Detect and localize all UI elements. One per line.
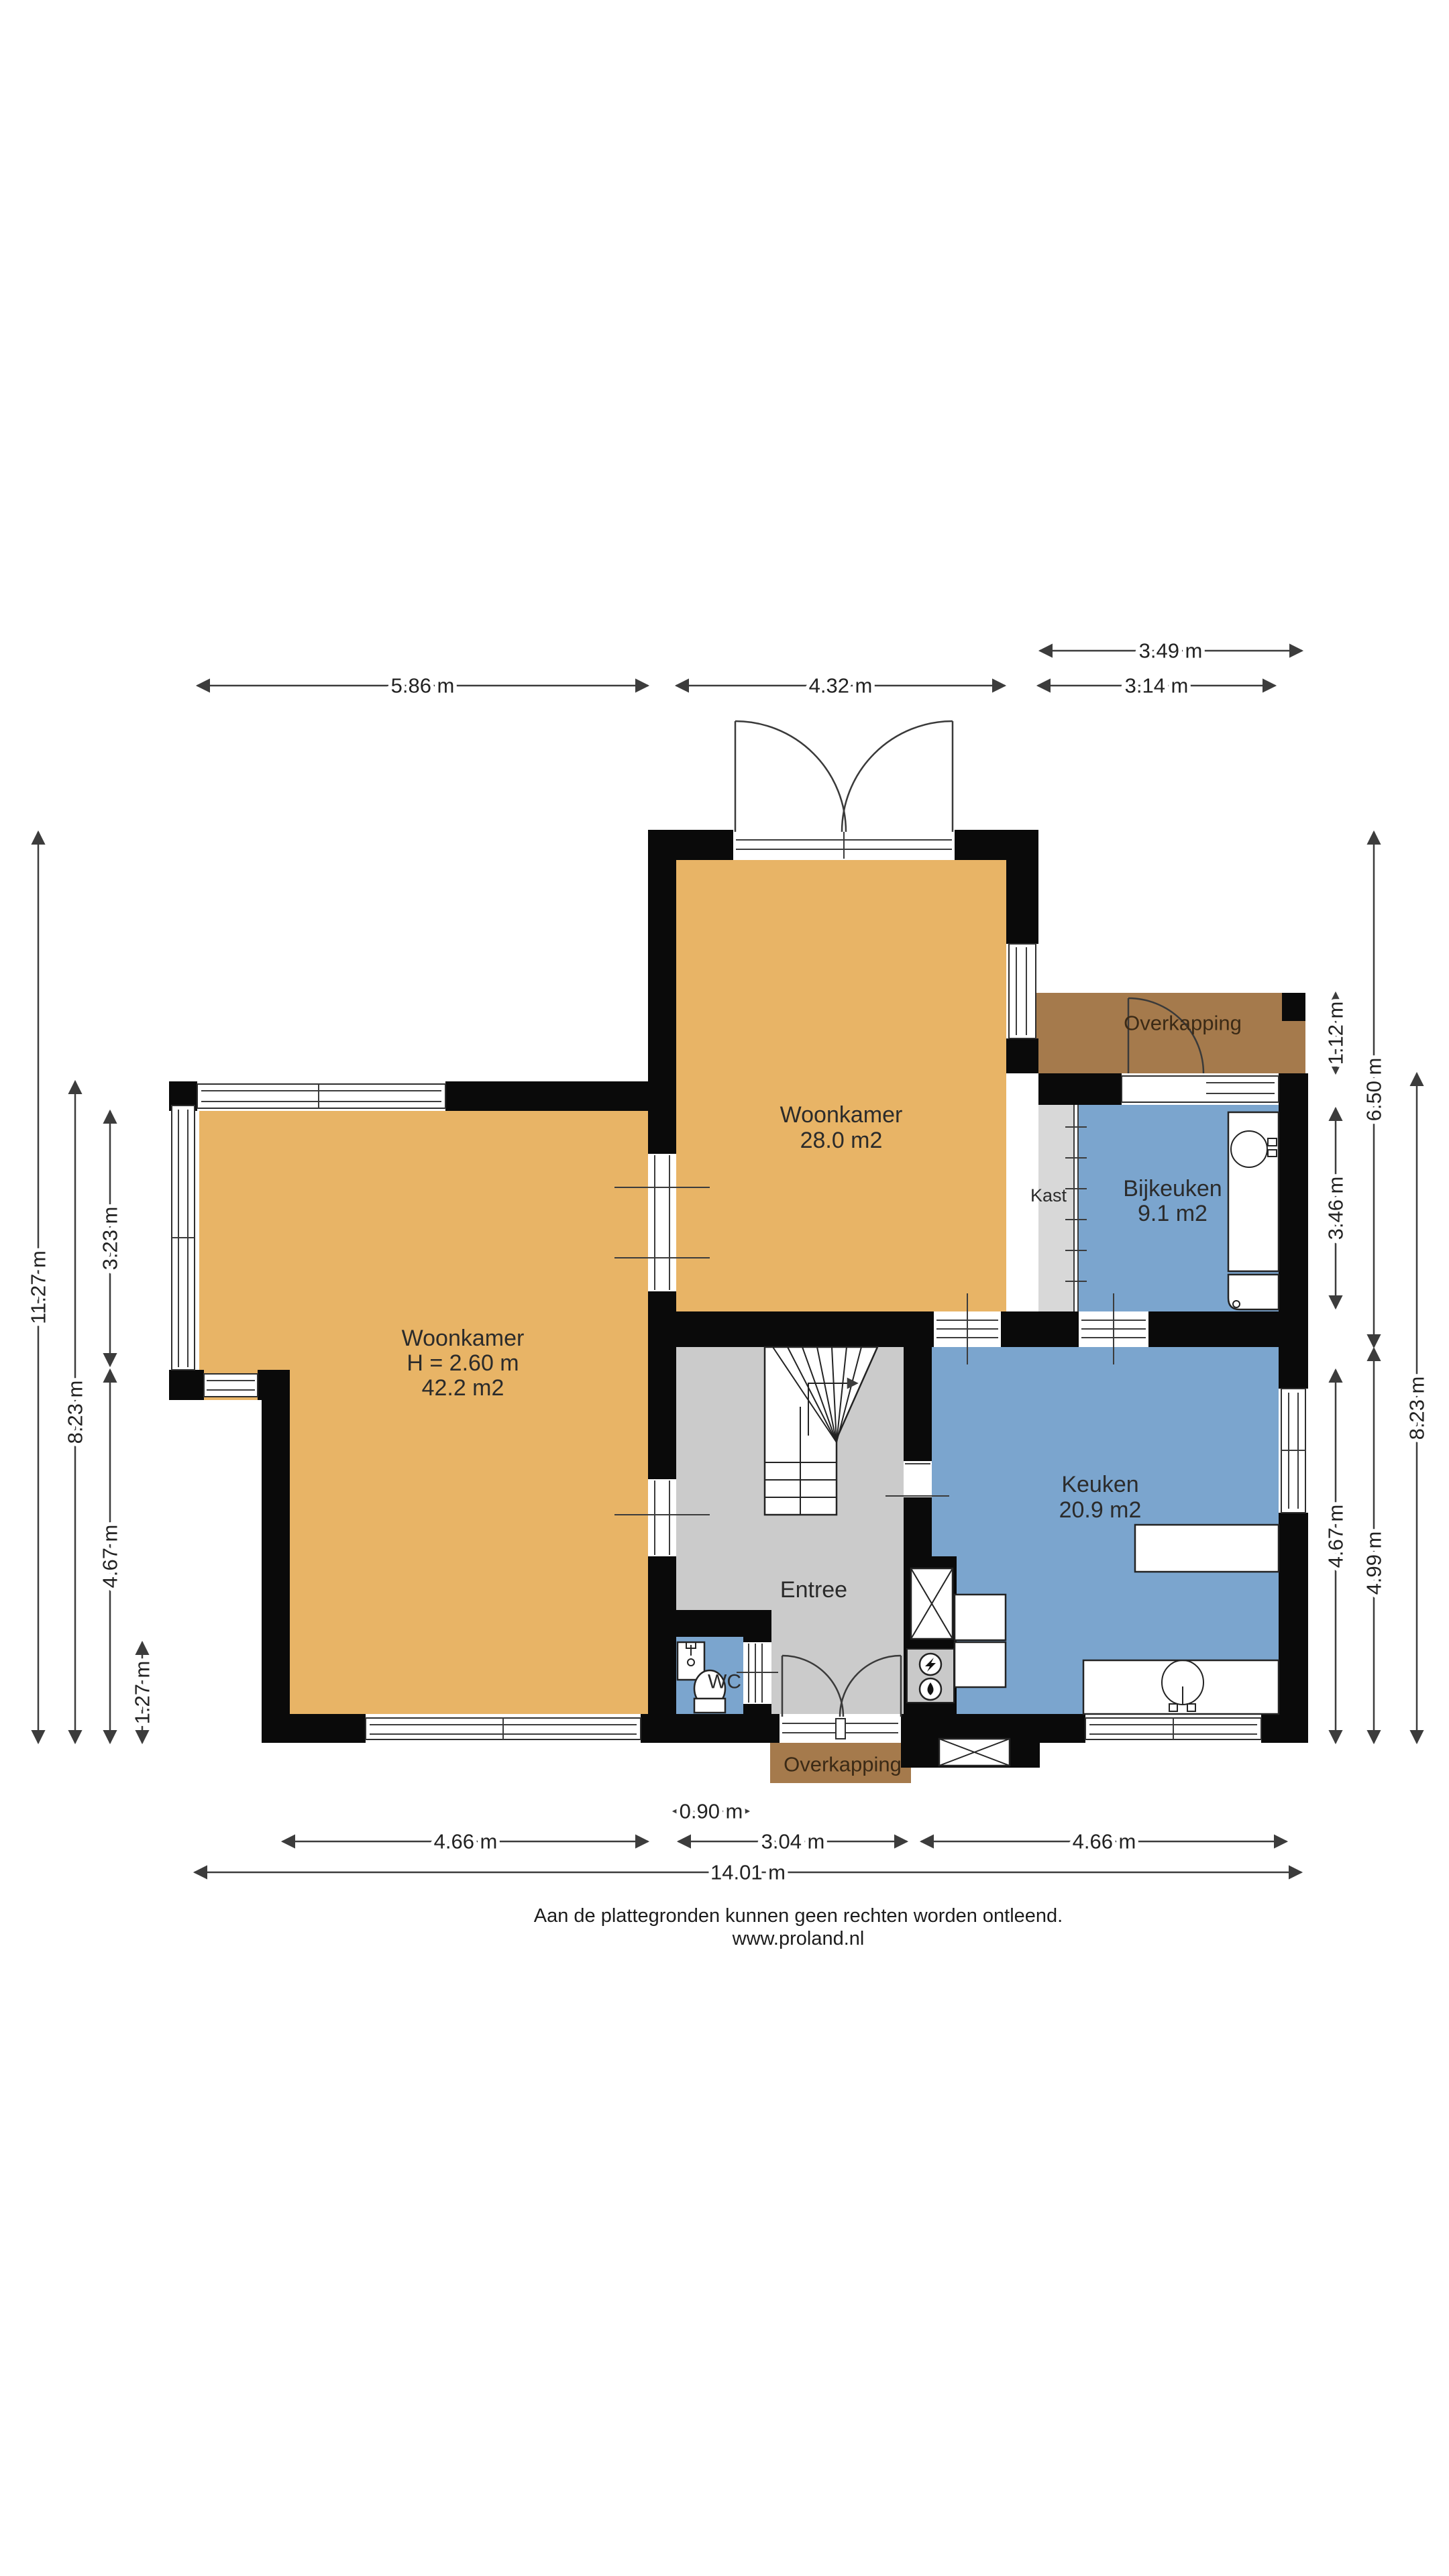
kitchen-island xyxy=(1135,1525,1279,1572)
kitchen-counter xyxy=(1083,1660,1279,1714)
wall-segment xyxy=(648,860,676,1154)
dim-label: 0.90 m xyxy=(680,1800,743,1823)
passage xyxy=(648,1479,676,1556)
wall-segment xyxy=(1006,1038,1038,1073)
label-woonkamer-left-area: 42.2 m2 xyxy=(422,1375,504,1401)
wall-corner xyxy=(169,1370,197,1400)
wall-segment xyxy=(641,1714,780,1743)
wall-segment xyxy=(648,830,733,860)
dim-label: 14.01 m xyxy=(710,1861,786,1884)
wall-segment xyxy=(1038,1073,1122,1105)
room-woonkamer-top-floor xyxy=(676,860,1006,1311)
wall-segment xyxy=(648,1610,771,1637)
dim-label: 8.23 m xyxy=(1405,1377,1429,1440)
dim-label: 4.67 m xyxy=(99,1525,122,1589)
footer-disclaimer: Aan de plattegronden kunnen geen rechten… xyxy=(534,1905,1063,1927)
label-woonkamer-top: Woonkamer xyxy=(780,1102,903,1128)
wall-pillar xyxy=(1282,993,1305,1021)
wall-segment xyxy=(1001,1311,1079,1347)
wall-segment xyxy=(955,830,1038,860)
dim-label: 6.50 m xyxy=(1362,1058,1386,1122)
label-woonkamer-left: Woonkamer xyxy=(402,1326,525,1351)
dim-label: 3.46 m xyxy=(1324,1177,1348,1240)
wall-segment xyxy=(743,1637,771,1642)
wall-segment xyxy=(904,1347,932,1461)
wall-segment xyxy=(904,1497,932,1556)
window xyxy=(204,1374,258,1397)
wall-segment xyxy=(258,1370,290,1400)
dim-label: 4.67 m xyxy=(1324,1505,1348,1568)
dim-label: 4.32 m xyxy=(809,674,873,698)
wall-segment xyxy=(1006,860,1038,944)
dim-label: 3.23 m xyxy=(99,1207,122,1271)
wall-segment xyxy=(743,1704,771,1714)
dim-label: 3.04 m xyxy=(761,1830,825,1854)
dim-label: 3.14 m xyxy=(1125,674,1189,698)
footer: Aan de plattegronden kunnen geen rechten… xyxy=(534,1905,1063,1949)
dim-label: 11.27 m xyxy=(27,1250,50,1324)
label-bijkeuken: Bijkeuken xyxy=(1123,1176,1222,1201)
dim-label: 4.66 m xyxy=(1073,1830,1136,1854)
room-kast-floor xyxy=(1038,1105,1073,1311)
door-swing-arc xyxy=(842,721,953,832)
window xyxy=(197,1084,445,1108)
wall-segment xyxy=(445,1081,648,1111)
window xyxy=(1009,944,1036,1038)
floorplan-page: 3.49 m 5.86 m 4.32 m 3.14 m 11.27 m 8.23… xyxy=(0,0,1449,2576)
dim-label: 3.49 m xyxy=(1139,639,1203,663)
dim-label: 4.66 m xyxy=(434,1830,498,1854)
label-entree: Entree xyxy=(780,1577,847,1603)
wall-segment xyxy=(290,1714,366,1743)
label-woonkamer-left-height: H = 2.60 m xyxy=(407,1350,519,1376)
label-wc: WC xyxy=(708,1671,741,1693)
dim-label: 1.27 m xyxy=(131,1661,154,1725)
wall-segment xyxy=(1040,1714,1085,1743)
dim-label: 5.86 m xyxy=(391,674,455,698)
label-keuken-area: 20.9 m2 xyxy=(1059,1497,1142,1523)
wall-segment xyxy=(1148,1311,1308,1347)
dim-label: 8.23 m xyxy=(64,1381,87,1444)
dim-label: 4.99 m xyxy=(1362,1532,1386,1595)
door-swing-arc xyxy=(735,721,846,832)
floorplan-drawing: 3.49 m 5.86 m 4.32 m 3.14 m 11.27 m 8.23… xyxy=(0,0,1449,2576)
toilet-tank xyxy=(694,1699,725,1713)
window-door-band xyxy=(1122,1076,1279,1102)
door-center-post xyxy=(836,1719,845,1739)
label-woonkamer-top-area: 28.0 m2 xyxy=(800,1128,883,1153)
wall-segment xyxy=(648,1311,934,1347)
footer-website: www.proland.nl xyxy=(732,1928,865,1949)
label-overkapping-top: Overkapping xyxy=(1124,1012,1242,1035)
dim-label: 1.12 m xyxy=(1324,1002,1348,1065)
wall-segment xyxy=(1261,1714,1308,1743)
kitchen-appliance xyxy=(955,1642,1006,1687)
wall-segment xyxy=(262,1400,290,1743)
wall-segment xyxy=(1279,1513,1308,1743)
label-overkapping-bottom: Overkapping xyxy=(784,1753,902,1776)
label-bijkeuken-area: 9.1 m2 xyxy=(1138,1201,1207,1226)
passage xyxy=(648,1154,676,1291)
doorway xyxy=(904,1461,932,1497)
bijkeuken-appliance xyxy=(1228,1275,1279,1309)
kitchen-appliance xyxy=(955,1595,1006,1640)
wall-segment xyxy=(197,1370,204,1400)
label-kast: Kast xyxy=(1030,1185,1067,1205)
label-keuken: Keuken xyxy=(1061,1472,1138,1497)
